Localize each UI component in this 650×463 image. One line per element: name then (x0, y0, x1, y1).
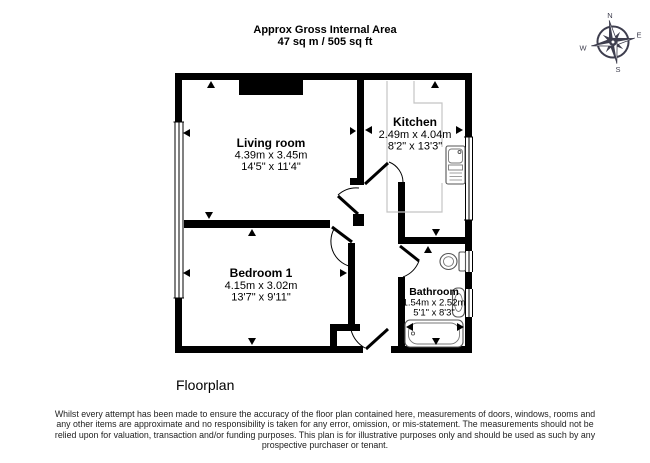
compass-w-label: W (579, 44, 587, 53)
room-labels: Living room 4.39m x 3.45m 14'5" x 11'4" … (225, 115, 466, 319)
chimney-breast (239, 80, 303, 95)
compass-e-label: E (636, 31, 641, 40)
kitchen-name: Kitchen (393, 115, 437, 129)
living-room-metric: 4.39m x 3.45m (235, 150, 308, 162)
disclaimer-line: any other items are approximate and no r… (0, 419, 650, 429)
bathroom-name: Bathroom (409, 286, 459, 298)
window-west (174, 122, 185, 298)
kitchen-door (365, 162, 403, 184)
plan-caption: Floorplan (176, 377, 234, 393)
bathroom-imperial: 5'1" x 8'3" (413, 308, 455, 319)
living-room-imperial: 14'5" x 11'4" (241, 161, 301, 173)
header: Approx Gross Internal Area 47 sq m / 505… (253, 24, 397, 48)
window-bathroom-east-2 (464, 289, 474, 317)
living-room-label: Living room 4.39m x 3.45m 14'5" x 11'4" (235, 136, 308, 173)
doors (331, 162, 419, 349)
bathroom-door (400, 246, 419, 277)
kitchen-imperial: 8'2" x 13'3" (388, 141, 442, 153)
floorplan-canvas: Approx Gross Internal Area 47 sq m / 505… (0, 0, 650, 405)
bedroom-label: Bedroom 1 4.15m x 3.02m 13'7" x 9'11" (225, 266, 298, 304)
compass-n-label: N (607, 11, 612, 20)
toilet-fixture (440, 252, 466, 271)
disclaimer-line: relied upon for valuation, transaction a… (0, 430, 650, 440)
page-title: Approx Gross Internal Area (253, 24, 397, 36)
compass-rose-icon: N E S W (579, 11, 641, 74)
bedroom-imperial: 13'7" x 9'11" (231, 292, 291, 304)
living-room-name: Living room (237, 136, 306, 150)
bathtub-fixture (405, 320, 463, 347)
bedroom-metric: 4.15m x 3.02m (225, 280, 298, 292)
floorplan-drawing: Living room 4.39m x 3.45m 14'5" x 11'4" … (174, 73, 475, 353)
bedroom-name: Bedroom 1 (230, 266, 293, 280)
compass-star (588, 17, 639, 68)
disclaimer-line: Whilst every attempt has been made to en… (0, 409, 650, 419)
disclaimer: Whilst every attempt has been made to en… (0, 409, 650, 451)
compass-s-label: S (615, 65, 620, 74)
kitchen-metric: 2.49m x 4.04m (379, 129, 452, 141)
disclaimer-line: prospective purchaser or tenant. (0, 440, 650, 450)
page-subtitle: 47 sq m / 505 sq ft (278, 36, 373, 48)
closet-wall (330, 324, 337, 346)
kitchen-sink-fixture (446, 146, 465, 184)
living-room-door (338, 188, 359, 214)
kitchen-label: Kitchen 2.49m x 4.04m 8'2" x 13'3" (379, 115, 452, 153)
